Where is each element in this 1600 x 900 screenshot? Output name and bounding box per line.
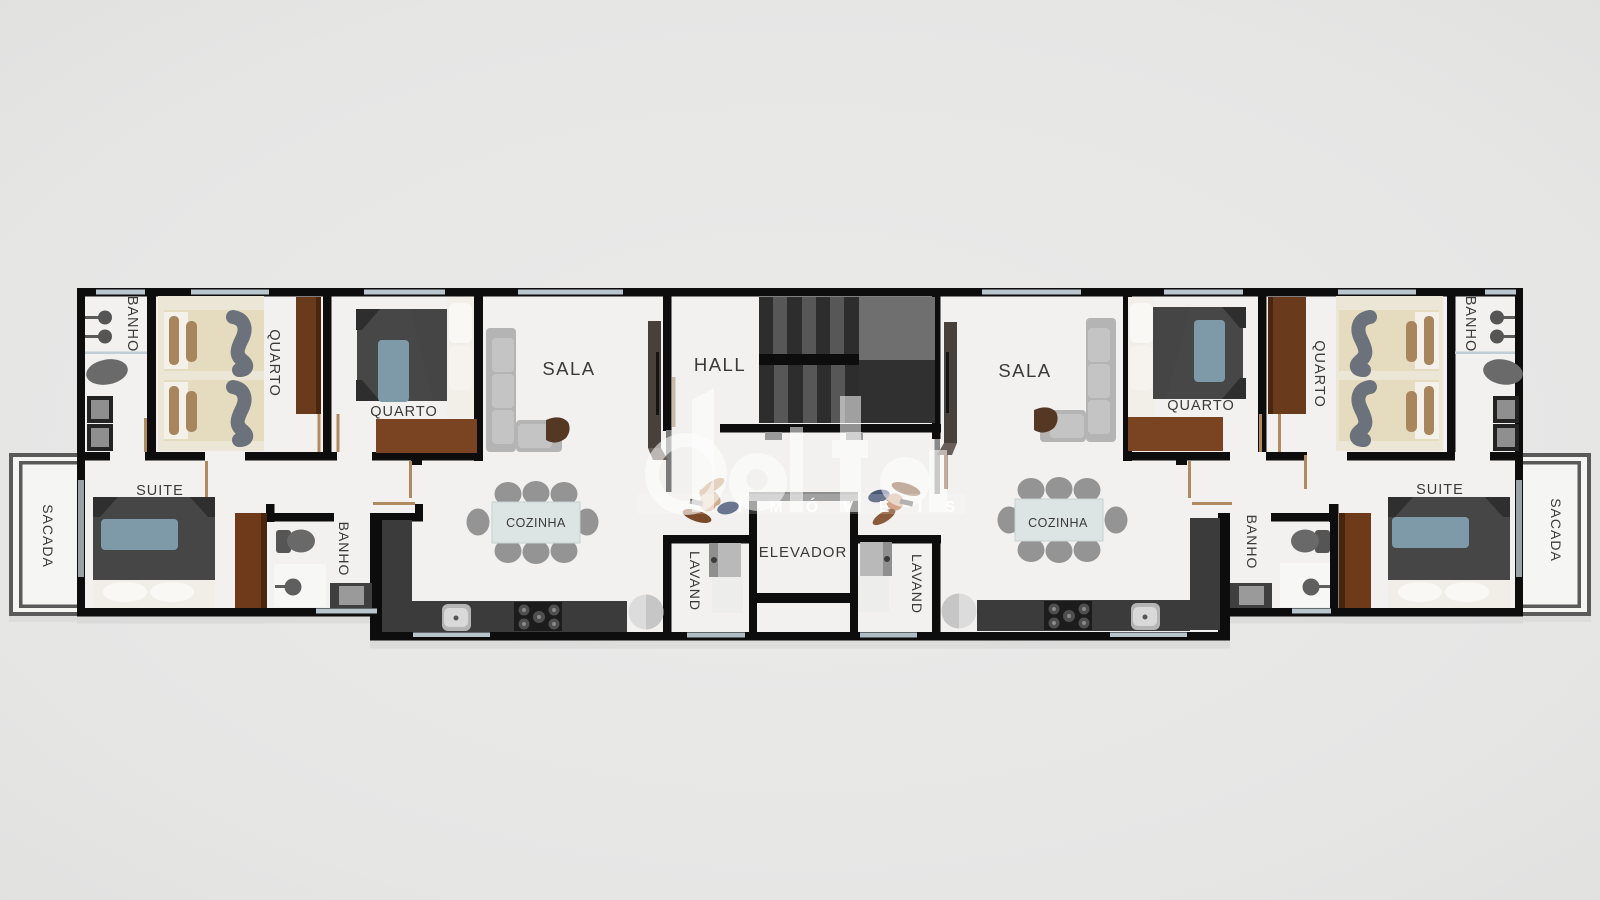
svg-text:LAVAND: LAVAND — [687, 551, 703, 611]
svg-text:LAVAND: LAVAND — [909, 554, 925, 614]
svg-text:BANHO: BANHO — [124, 296, 140, 353]
svg-text:I: I — [918, 499, 922, 516]
svg-text:BANHO: BANHO — [1244, 515, 1260, 570]
svg-text:SUITE: SUITE — [1416, 482, 1464, 498]
svg-text:I: I — [738, 499, 742, 516]
svg-text:QUARTO: QUARTO — [370, 404, 438, 420]
svg-text:V: V — [843, 499, 854, 516]
svg-text:SACADA: SACADA — [40, 504, 56, 568]
svg-text:M: M — [770, 499, 783, 516]
svg-text:COZINHA: COZINHA — [1028, 516, 1088, 530]
svg-text:S: S — [945, 499, 955, 516]
svg-text:QUARTO: QUARTO — [1167, 398, 1235, 414]
svg-text:ELEVADOR: ELEVADOR — [759, 544, 848, 561]
svg-text:SACADA: SACADA — [1548, 498, 1564, 562]
svg-text:Ó: Ó — [806, 498, 818, 516]
svg-text:SALA: SALA — [998, 360, 1051, 381]
svg-text:SUITE: SUITE — [136, 483, 184, 499]
svg-text:E: E — [879, 499, 889, 516]
svg-text:HALL: HALL — [694, 354, 746, 375]
svg-text:QUARTO: QUARTO — [266, 329, 282, 397]
svg-text:COZINHA: COZINHA — [506, 516, 566, 530]
svg-text:SALA: SALA — [542, 358, 595, 379]
svg-text:BANHO: BANHO — [1462, 296, 1478, 353]
svg-text:BANHO: BANHO — [336, 522, 352, 577]
svg-text:QUARTO: QUARTO — [1311, 340, 1327, 408]
